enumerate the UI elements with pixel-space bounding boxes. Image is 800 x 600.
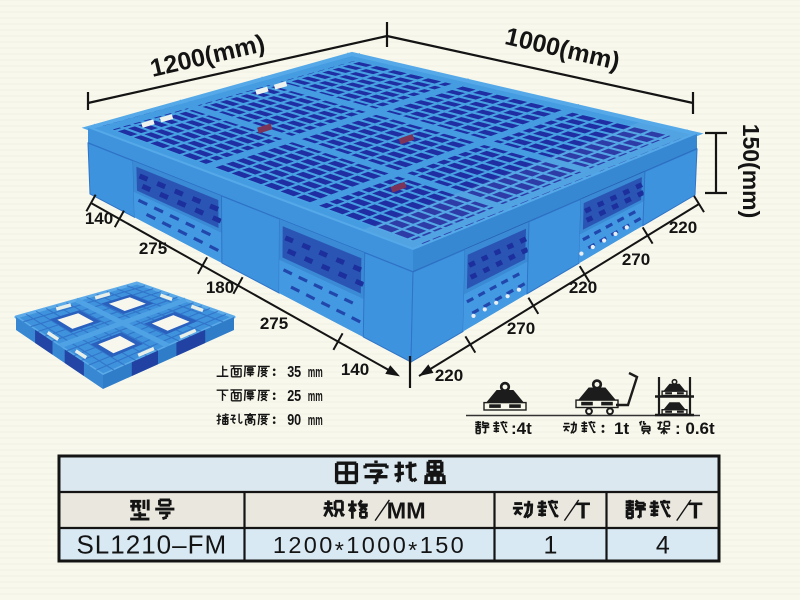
svg-text:T: T [688, 497, 703, 523]
svg-text:mm: mm [308, 364, 323, 381]
svg-text:220: 220 [435, 366, 463, 385]
svg-text:1t: 1t [614, 419, 629, 438]
svg-text:25: 25 [287, 388, 301, 405]
svg-text:270: 270 [507, 319, 535, 338]
svg-text:T: T [576, 497, 591, 523]
svg-text:275: 275 [139, 239, 167, 258]
svg-text:1: 1 [544, 532, 558, 560]
svg-text:MM: MM [387, 497, 426, 523]
svg-text:90: 90 [287, 412, 301, 429]
svg-text:mm: mm [308, 388, 323, 405]
svg-text:270: 270 [622, 250, 650, 269]
svg-text:180: 180 [206, 278, 234, 297]
svg-text:4: 4 [656, 532, 670, 560]
svg-text:220: 220 [669, 218, 697, 237]
svg-text:140: 140 [85, 209, 113, 228]
svg-text:SL1210–FM: SL1210–FM [76, 530, 227, 560]
svg-text:140: 140 [341, 360, 369, 379]
svg-text:150(mm): 150(mm) [738, 124, 764, 219]
svg-text:220: 220 [569, 278, 597, 297]
svg-text:275: 275 [260, 314, 288, 333]
svg-text:35: 35 [287, 364, 301, 381]
svg-text::4t: :4t [511, 419, 532, 438]
svg-text:mm: mm [308, 412, 323, 429]
svg-text:: 0.6t: : 0.6t [675, 419, 715, 438]
